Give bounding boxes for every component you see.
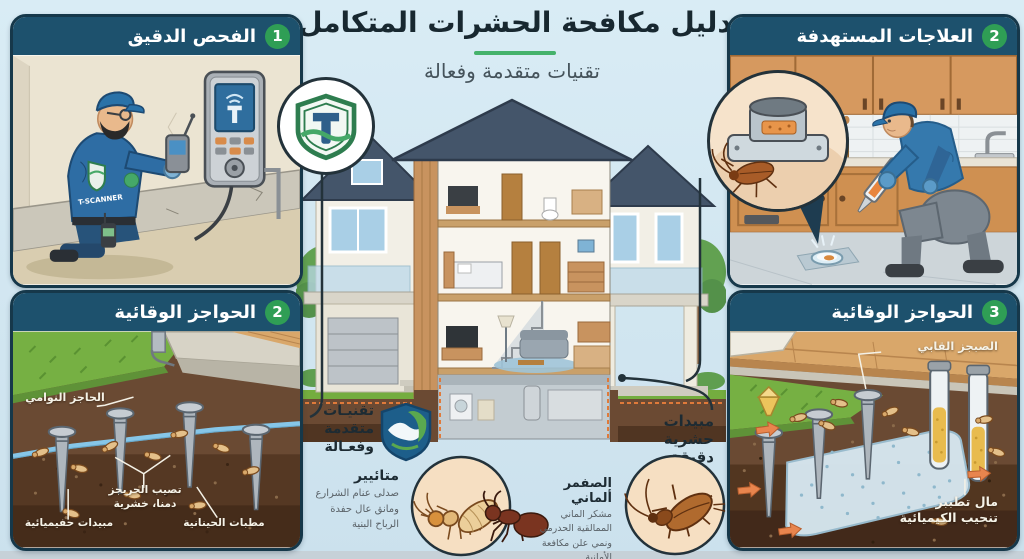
termite-note-line2: ومانق عال حفدة (302, 502, 399, 518)
deck-label-chemical-line1: مال تطببر (868, 494, 998, 510)
inspection-scene: T-SCANNER (13, 55, 300, 285)
cockroach-note-line1: مشكر الماني (520, 508, 612, 522)
number-badge: 2 (265, 300, 290, 325)
cockroach-note: الصفمر ألماني مشكر الماني الممالقية الحد… (520, 476, 612, 559)
termite-note-title: متائيير (302, 468, 399, 484)
tech-badge-line1: تقنيـات (300, 402, 374, 420)
panel-barriers-soil: الحواجز الوقائية 2 (10, 290, 303, 551)
inspection-scene-illustration: T-SCANNER (13, 55, 300, 285)
soil-barrier-scene: الحاجز النوامي تصيب الحريجز دمنا، خشرية … (13, 331, 300, 548)
brand-badge (277, 77, 375, 175)
panel-header: الحواجز الوقائية 3 (730, 293, 1017, 331)
deck-barrier-scene: الصبجز القابي مال تطببر تنحيب الكيميائية (730, 331, 1017, 548)
panel-inspection: الفحص الدقيق 1 (10, 14, 303, 288)
cockroach-note-line4: الأمانية (520, 551, 612, 559)
cockroach-circle-illustration (622, 452, 728, 558)
shield-t-icon (283, 83, 369, 169)
uniform-shield-icon (89, 162, 105, 191)
number-badge: 1 (265, 24, 290, 49)
soil-label-chemical: مبيدات حفيميائية (17, 517, 121, 531)
bait-station-illustration (710, 73, 846, 209)
soil-barrier-illustration (13, 331, 300, 548)
termite-note-line3: الرباح البنية (302, 517, 399, 533)
page-subtitle: تقنيات متقدمة وفعالة (312, 59, 712, 83)
deck-label-chemical-line2: تنحيب الكيميائية (868, 510, 998, 526)
title-underline (474, 51, 556, 55)
soil-label-bumps: مطبات الحينانية (169, 517, 279, 531)
panel-header: الحواجز الوقائية 2 (13, 293, 300, 331)
number-badge: 2 (982, 24, 1007, 49)
panel-barriers-deck: الحواجز الوقائية 3 (727, 290, 1020, 551)
soil-label-injection-line1: تصيب الحريجز (99, 484, 191, 498)
panel-header: العلاجات المستهدفة 2 (730, 17, 1017, 55)
bait-tube (928, 361, 950, 468)
panel-title: الحواجز الوقائية (114, 302, 256, 323)
cockroach-note-title: الصفمر ألماني (520, 476, 612, 506)
deck-label-chemical: مال تطببر تنحيب الكيميائية (868, 494, 998, 527)
insecticide-label-line1: مبيدات (628, 412, 714, 430)
infographic-canvas: دليل مكافحة الحشرات المتكامل تقنيات متقد… (0, 0, 1024, 559)
termite-note: متائيير صدلى عنام الشرارع ومانق عال حفدة… (302, 468, 399, 533)
panel-title: الفحص الدقيق (128, 26, 256, 47)
bait-station-magnifier (707, 70, 849, 212)
panel-header: الفحص الدقيق 1 (13, 17, 300, 55)
soil-label-injection: تصيب الحريجز دمنا، خشرية (99, 484, 191, 511)
termite-note-line1: صدلى عنام الشرارع (302, 486, 399, 502)
panel-title: الحواجز الوقائية (831, 302, 973, 323)
tech-badge-line2: متقدمة (300, 420, 374, 438)
tech-badge-line3: وفعـالة (300, 438, 374, 456)
panel-title: العلاجات المستهدفة (797, 26, 973, 47)
deck-label-barrier: الصبجز القابي (878, 339, 998, 354)
soil-label-injection-line2: دمنا، خشرية (99, 498, 191, 512)
cockroach-note-line3: ونمي علن مكافعة (520, 537, 612, 551)
page-title: دليل مكافحة الحشرات المتكامل (270, 6, 760, 39)
cockroach-note-line2: الممالقية الحدرمي (520, 522, 612, 536)
soil-label-barrier: الحاجز النوامي (23, 391, 107, 405)
number-badge: 3 (982, 300, 1007, 325)
